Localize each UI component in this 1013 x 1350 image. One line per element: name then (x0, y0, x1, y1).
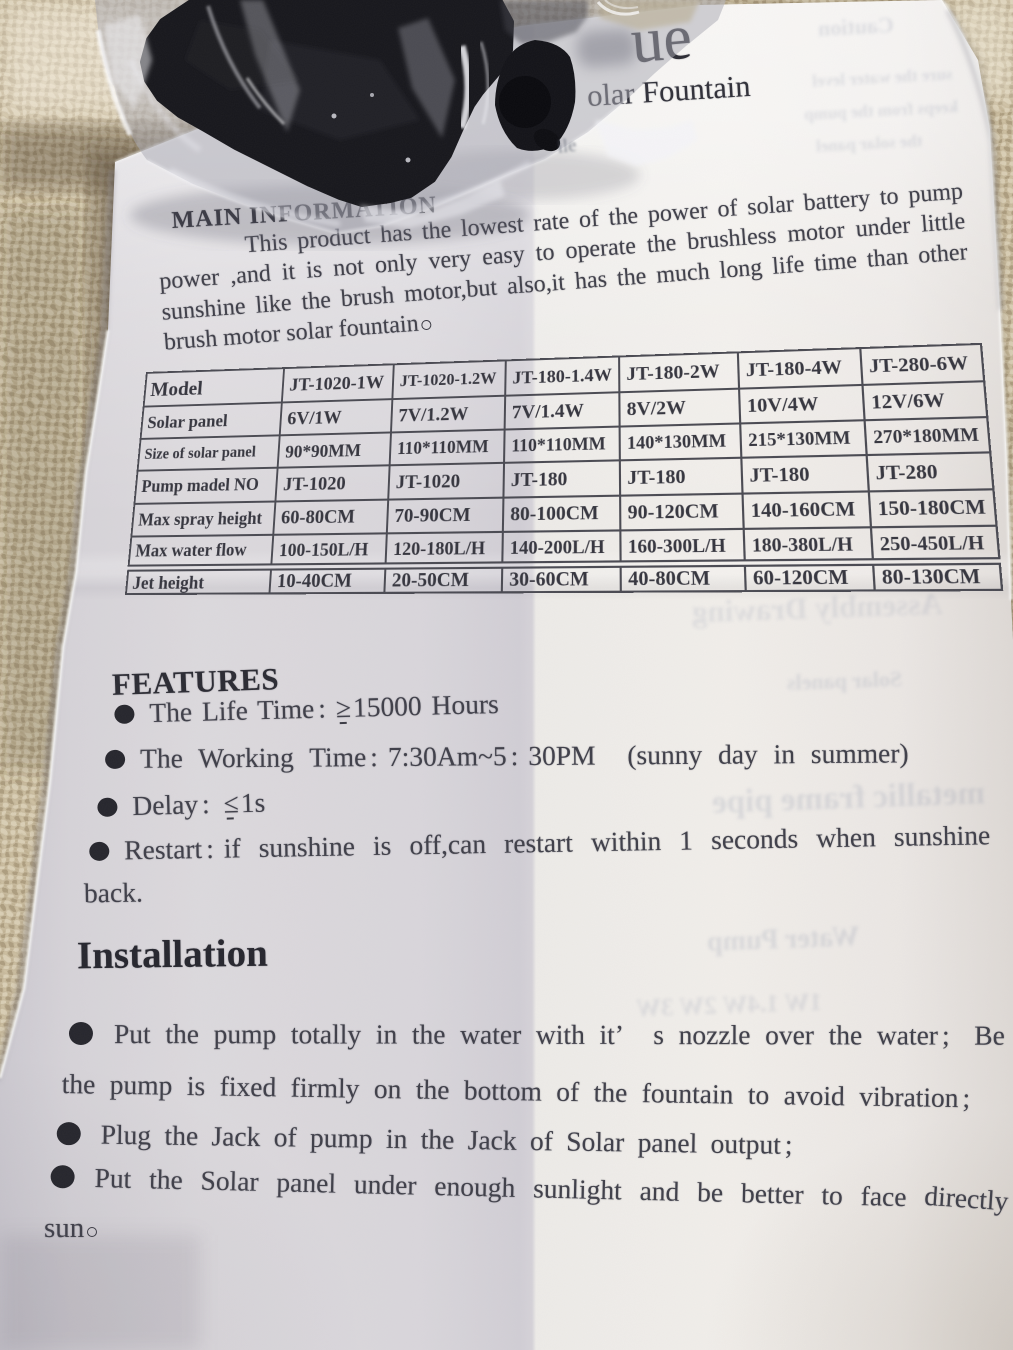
svg-text:ile: ile (556, 135, 577, 158)
